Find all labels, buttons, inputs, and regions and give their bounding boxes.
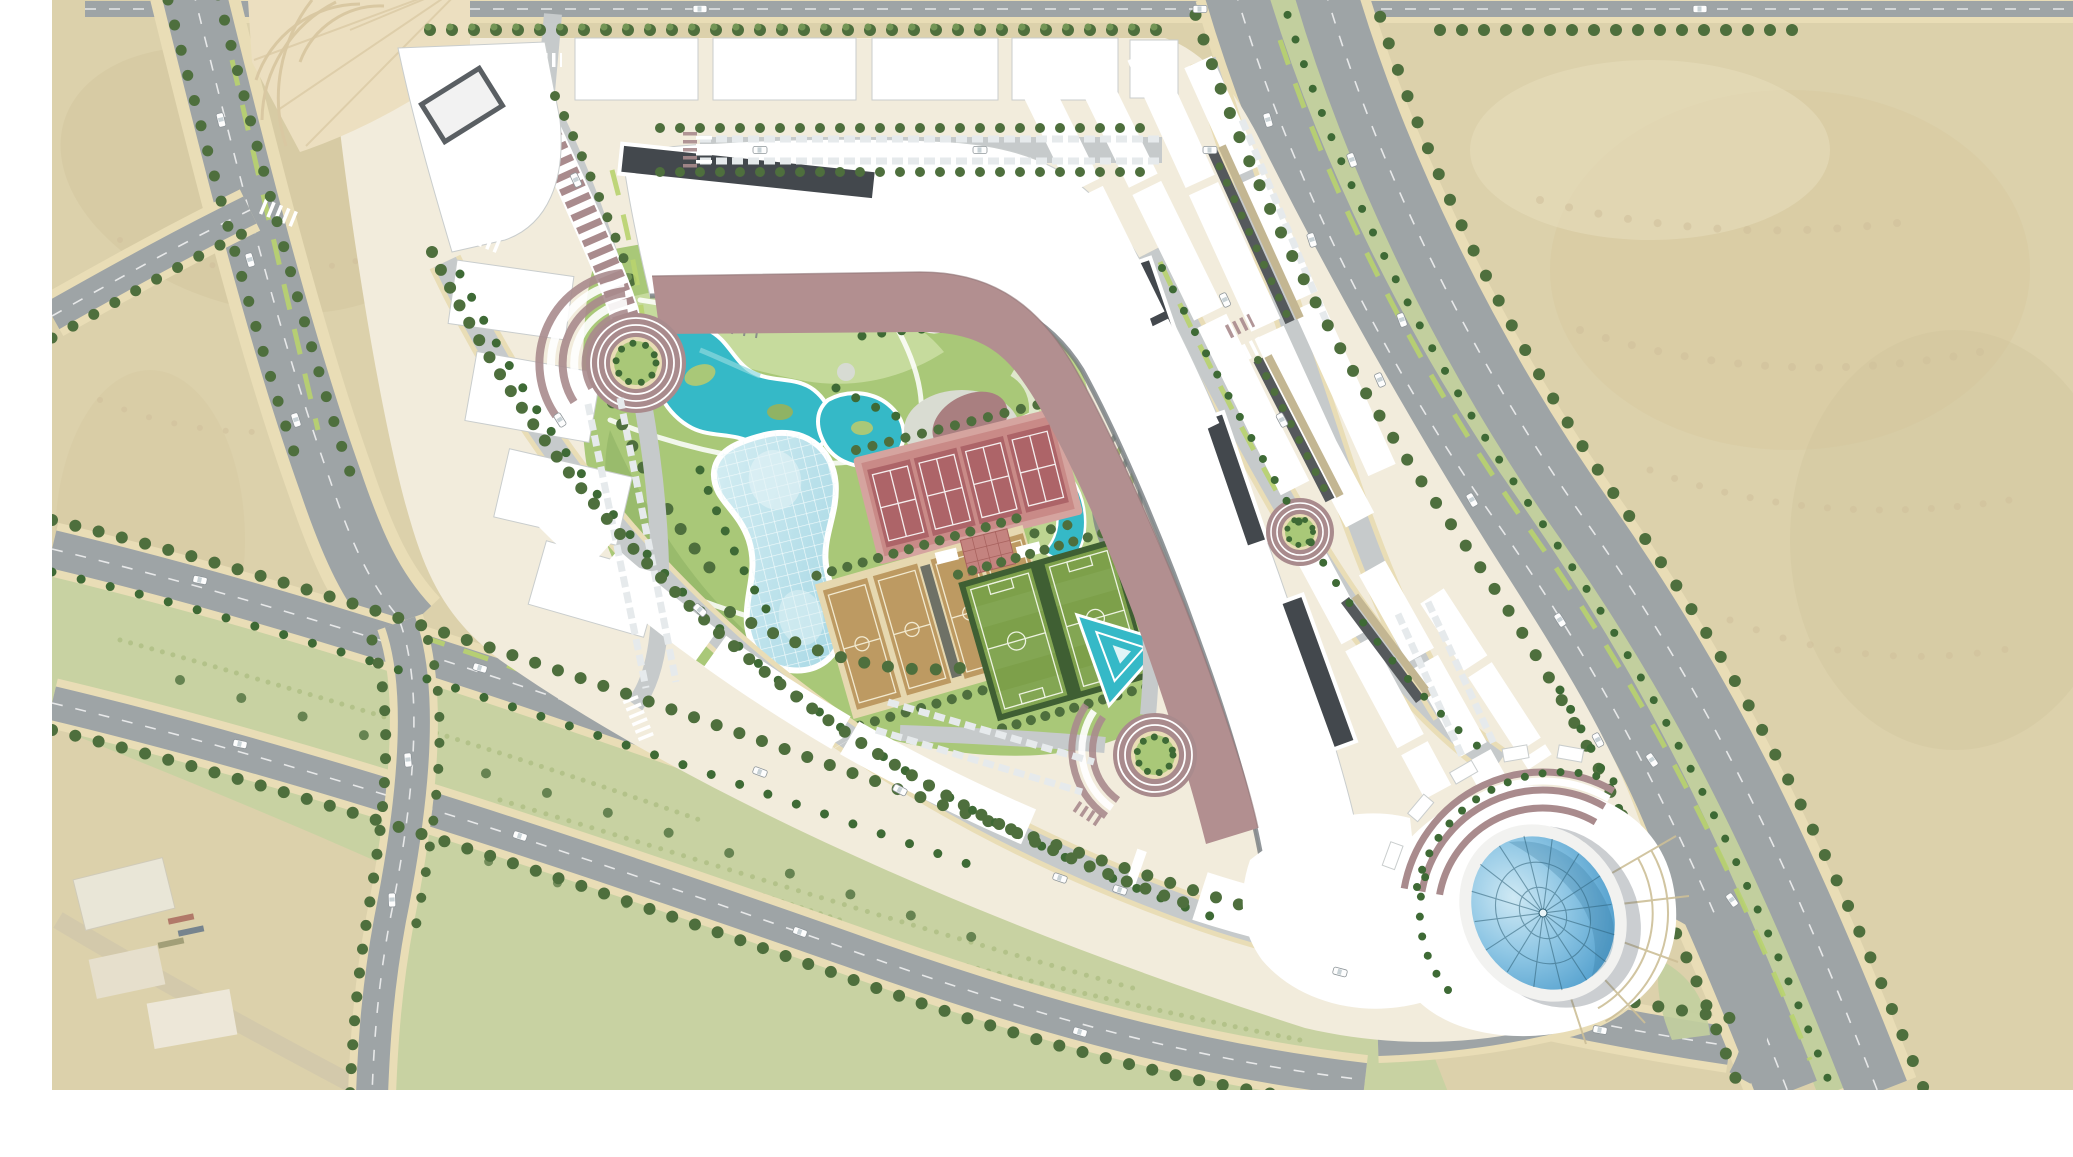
masterplan-canvas: Sand desert with dune texture surroundin… xyxy=(0,0,2073,1157)
masterplan-rendering: Sand desert with dune texture surroundin… xyxy=(0,0,2073,1157)
roundabout-west xyxy=(586,313,686,413)
roundabout-east xyxy=(1266,498,1334,566)
